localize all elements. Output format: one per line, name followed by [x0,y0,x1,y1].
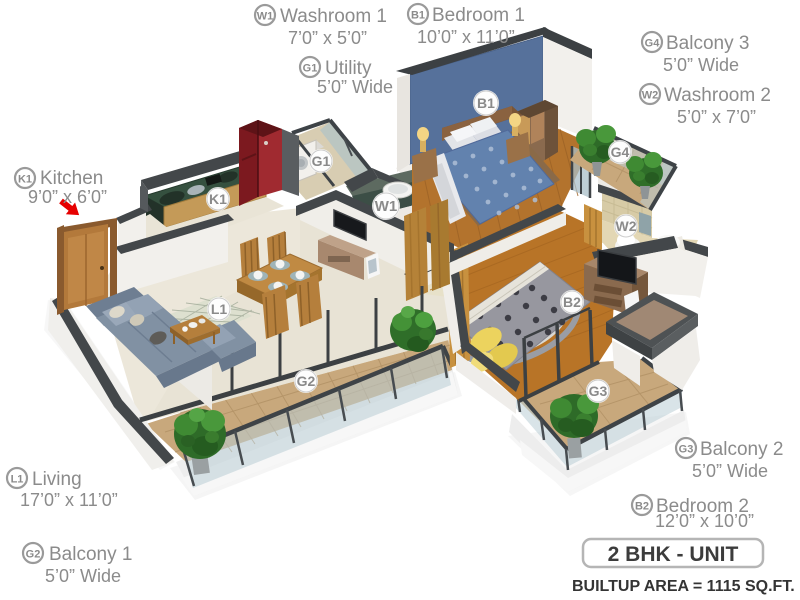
svg-text:10’0” x 11’0”: 10’0” x 11’0” [417,27,515,47]
svg-text:K1: K1 [18,174,32,186]
svg-text:G3: G3 [589,383,608,399]
svg-text:5’0” Wide: 5’0” Wide [45,566,121,586]
svg-text:B2: B2 [635,501,649,513]
svg-text:Balcony 2: Balcony 2 [700,439,783,460]
svg-text:L1: L1 [11,474,24,486]
svg-text:Utility: Utility [325,58,372,79]
svg-text:K1: K1 [209,191,227,207]
svg-text:W2: W2 [616,218,637,234]
svg-text:Balcony 1: Balcony 1 [49,544,132,565]
svg-text:L1: L1 [211,301,228,317]
svg-text:2 BHK - UNIT: 2 BHK - UNIT [608,543,739,566]
svg-text:BUILTUP AREA = 1115 SQ.FT.: BUILTUP AREA = 1115 SQ.FT. [572,578,795,595]
svg-text:G1: G1 [303,63,318,75]
svg-text:G2: G2 [26,549,41,561]
svg-text:G4: G4 [645,38,661,50]
svg-text:5’0” Wide: 5’0” Wide [692,461,768,481]
svg-text:17’0” x 11’0”: 17’0” x 11’0” [20,490,118,510]
svg-text:9’0” x 6’0”: 9’0” x 6’0” [28,187,107,207]
svg-text:Kitchen: Kitchen [40,168,103,189]
svg-text:W1: W1 [257,11,274,23]
svg-text:Washroom 2: Washroom 2 [664,85,771,106]
svg-text:G4: G4 [611,144,630,160]
svg-text:B2: B2 [563,294,581,310]
svg-text:G3: G3 [679,444,694,456]
svg-text:Bedroom 1: Bedroom 1 [432,5,525,26]
svg-text:7’0” x 5’0”: 7’0” x 5’0” [288,28,367,48]
svg-text:G1: G1 [312,153,331,169]
svg-text:Washroom 1: Washroom 1 [280,6,387,27]
svg-text:W1: W1 [375,198,398,215]
svg-text:Living: Living [32,469,82,490]
svg-text:B1: B1 [477,95,495,111]
svg-text:5’0” Wide: 5’0” Wide [317,77,393,97]
svg-text:Balcony 3: Balcony 3 [666,33,749,54]
svg-text:G2: G2 [297,373,316,389]
svg-text:B1: B1 [411,10,425,22]
svg-text:5’0” x 7’0”: 5’0” x 7’0” [677,107,756,127]
svg-text:W2: W2 [642,90,659,102]
svg-text:12’0” x 10’0”: 12’0” x 10’0” [655,511,754,531]
svg-text:5’0” Wide: 5’0” Wide [663,55,739,75]
